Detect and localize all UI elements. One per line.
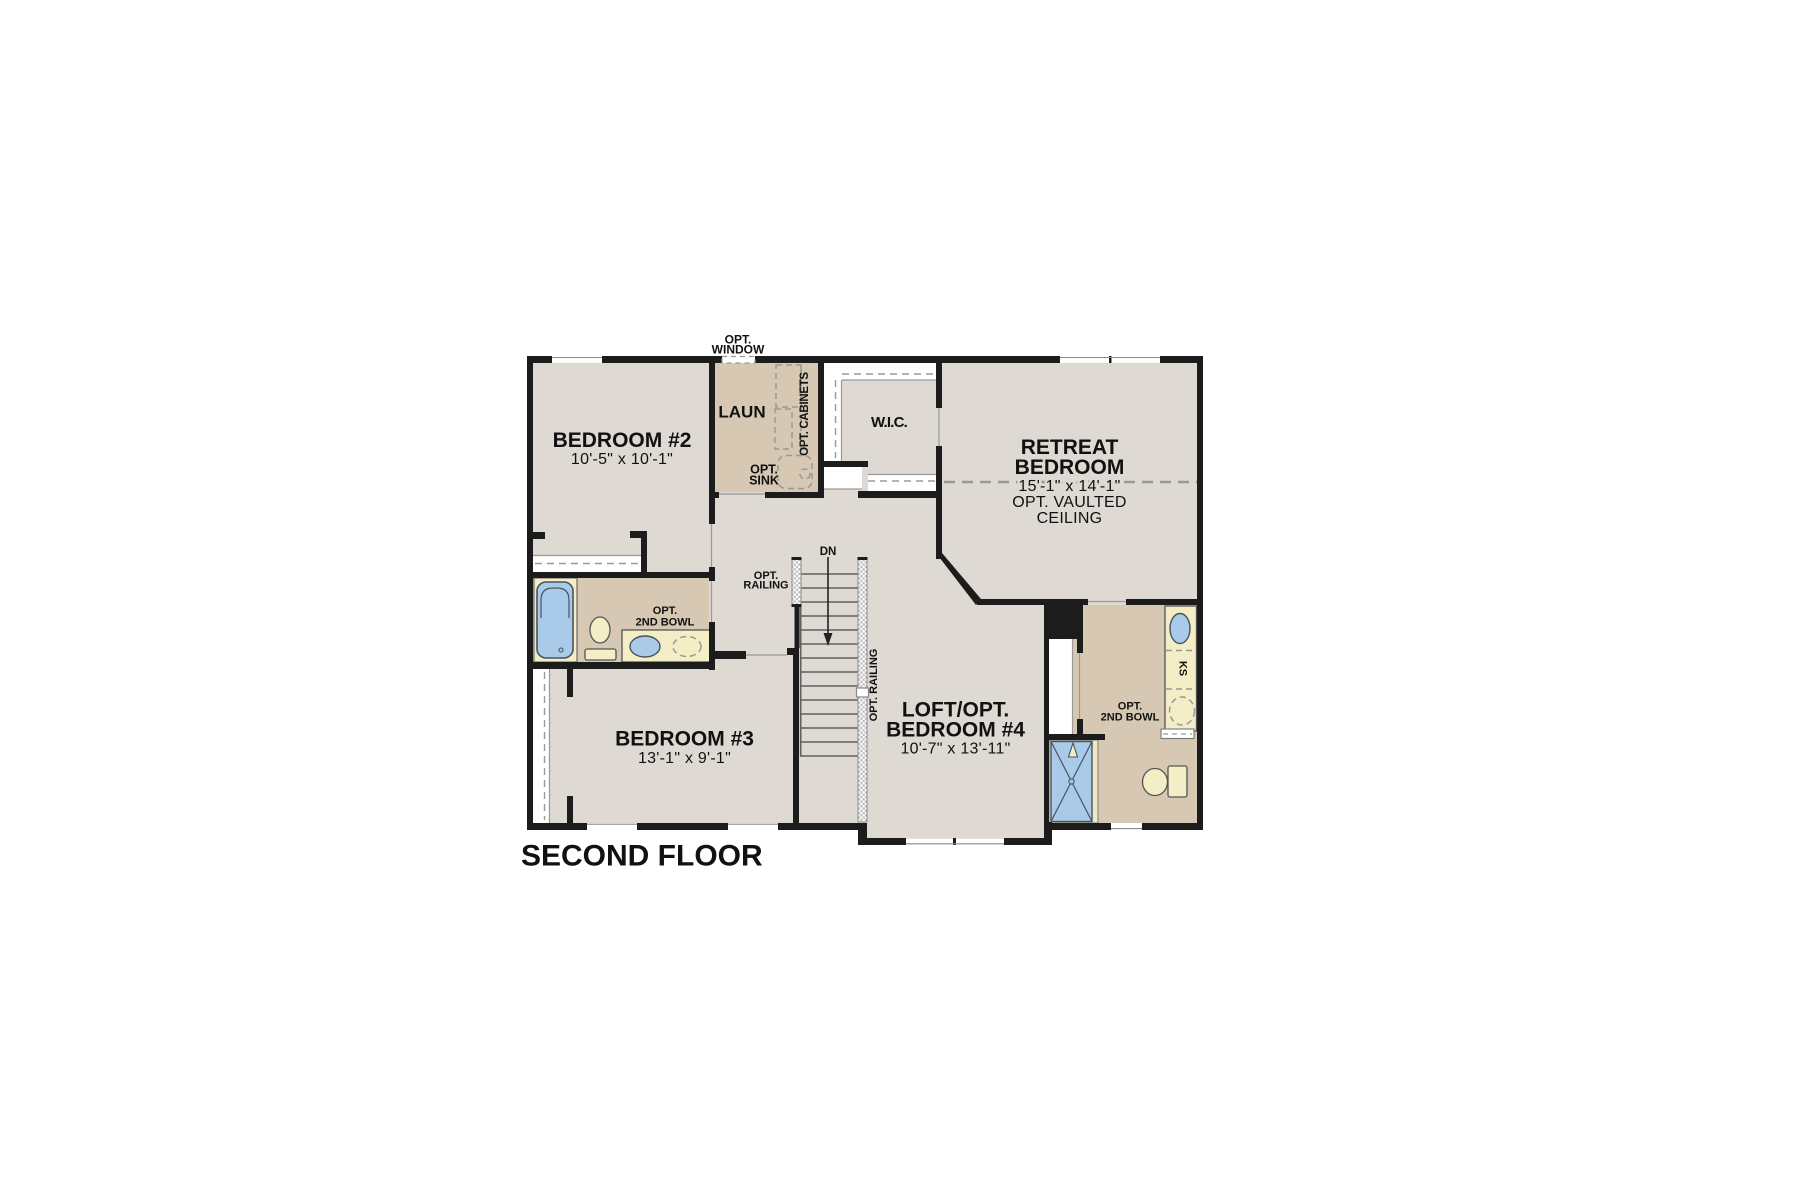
- svg-text:CEILING: CEILING: [1037, 510, 1103, 527]
- svg-text:DN: DN: [820, 546, 837, 558]
- svg-text:SINK: SINK: [749, 473, 779, 487]
- svg-text:BEDROOM #4: BEDROOM #4: [886, 719, 1025, 742]
- svg-text:WINDOW: WINDOW: [712, 343, 765, 357]
- svg-text:OPT. RAILING: OPT. RAILING: [868, 649, 880, 722]
- svg-text:10'-7" x 13'-11": 10'-7" x 13'-11": [900, 741, 1010, 758]
- svg-text:2ND BOWL: 2ND BOWL: [1101, 712, 1160, 724]
- svg-text:10'-5" x 10'-1": 10'-5" x 10'-1": [571, 451, 673, 468]
- svg-text:BEDROOM #3: BEDROOM #3: [615, 728, 754, 751]
- svg-text:13'-1" x 9'-1": 13'-1" x 9'-1": [638, 750, 731, 767]
- svg-text:OPT. CABINETS: OPT. CABINETS: [799, 372, 811, 456]
- svg-text:BEDROOM: BEDROOM: [1015, 456, 1125, 479]
- svg-text:W.I.C.: W.I.C.: [871, 414, 908, 431]
- svg-text:RAILING: RAILING: [743, 580, 788, 592]
- svg-text:15'-1" x 14'-1": 15'-1" x 14'-1": [1018, 478, 1120, 495]
- svg-text:BEDROOM #2: BEDROOM #2: [553, 429, 692, 452]
- svg-text:OPT. VAULTED: OPT. VAULTED: [1012, 494, 1126, 511]
- svg-text:LAUN: LAUN: [718, 403, 765, 422]
- svg-text:2ND BOWL: 2ND BOWL: [636, 617, 695, 629]
- svg-text:SECOND FLOOR: SECOND FLOOR: [521, 840, 763, 873]
- svg-text:KS: KS: [1177, 661, 1189, 676]
- svg-text:OPT.: OPT.: [653, 605, 677, 617]
